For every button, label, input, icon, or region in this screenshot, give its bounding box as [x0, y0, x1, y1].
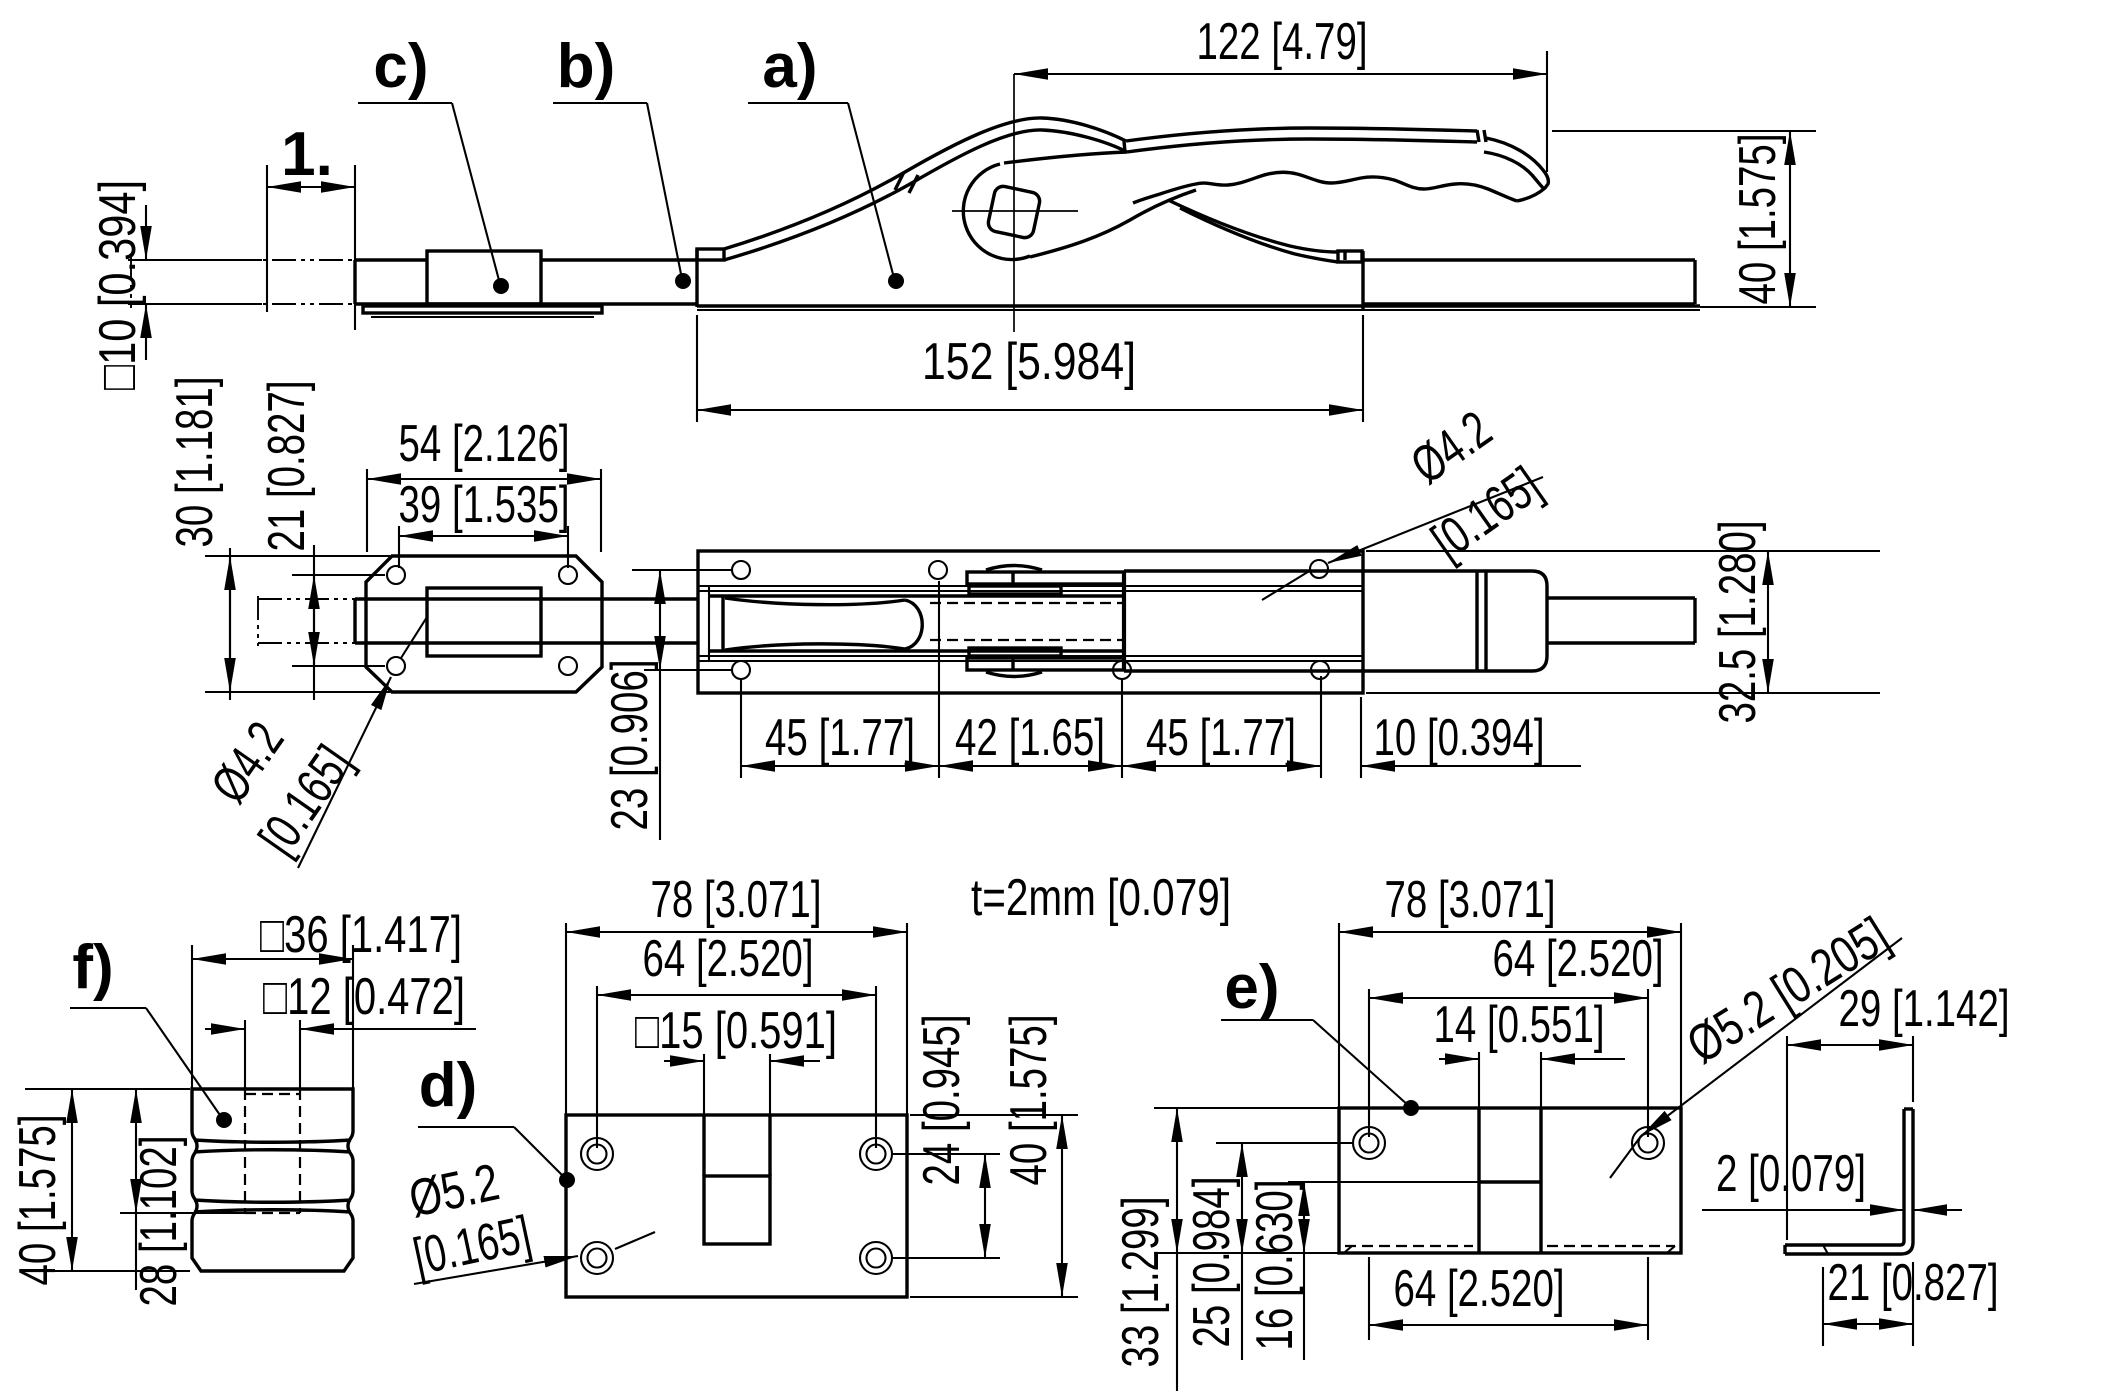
svg-text:64 [2.520]: 64 [2.520] [1493, 930, 1664, 988]
svg-text:122 [4.79]: 122 [4.79] [1197, 13, 1368, 71]
svg-text:10 [0.394]: 10 [0.394] [1374, 709, 1545, 767]
svg-text:40 [1.575]: 40 [1.575] [1000, 1015, 1058, 1186]
svg-text:d): d) [419, 1051, 478, 1120]
svg-text:21 [0.827]: 21 [0.827] [258, 381, 316, 552]
svg-text:b): b) [557, 32, 616, 101]
svg-text:25 [0.984]: 25 [0.984] [1183, 1177, 1241, 1348]
svg-text:14 [0.551]: 14 [0.551] [1434, 996, 1605, 1054]
svg-text:□15 [0.591]: □15 [0.591] [635, 1002, 837, 1060]
svg-text:1.: 1. [281, 120, 333, 189]
svg-text:16 [0.630]: 16 [0.630] [1246, 1180, 1304, 1351]
svg-text:23 [0.906]: 23 [0.906] [601, 660, 659, 831]
svg-text:39 [1.535]: 39 [1.535] [399, 476, 570, 534]
svg-text:42 [1.65]: 42 [1.65] [955, 709, 1105, 767]
svg-text:64 [2.520]: 64 [2.520] [643, 930, 814, 988]
svg-text:□36 [1.417]: □36 [1.417] [260, 906, 462, 964]
svg-text:f): f) [72, 933, 113, 1002]
svg-text:30 [1.181]: 30 [1.181] [166, 377, 224, 548]
svg-text:40 [1.575]: 40 [1.575] [9, 1115, 67, 1286]
svg-text:a): a) [762, 32, 817, 101]
svg-text:152 [5.984]: 152 [5.984] [922, 333, 1136, 391]
svg-text:45 [1.77]: 45 [1.77] [1146, 709, 1296, 767]
svg-text:40 [1.575]: 40 [1.575] [1729, 134, 1787, 305]
svg-text:e): e) [1224, 953, 1279, 1022]
svg-text:29 [1.142]: 29 [1.142] [1839, 980, 2010, 1038]
svg-text:54 [2.126]: 54 [2.126] [399, 415, 570, 473]
svg-text:□12 [0.472]: □12 [0.472] [263, 968, 465, 1026]
svg-text:2 [0.079]: 2 [0.079] [1716, 1145, 1866, 1203]
svg-text:28 [1.102]: 28 [1.102] [130, 1136, 188, 1307]
svg-text:33 [1.299]: 33 [1.299] [1112, 1197, 1170, 1368]
svg-text:78 [3.071]: 78 [3.071] [1385, 871, 1556, 929]
svg-text:64 [2.520]: 64 [2.520] [1394, 1260, 1565, 1318]
svg-text:□10 [0.394]: □10 [0.394] [89, 180, 147, 390]
svg-text:t=2mm [0.079]: t=2mm [0.079] [971, 869, 1231, 927]
svg-text:78 [3.071]: 78 [3.071] [651, 871, 822, 929]
svg-text:c): c) [373, 32, 428, 101]
svg-text:45 [1.77]: 45 [1.77] [765, 709, 915, 767]
svg-text:24 [0.945]: 24 [0.945] [913, 1015, 971, 1186]
